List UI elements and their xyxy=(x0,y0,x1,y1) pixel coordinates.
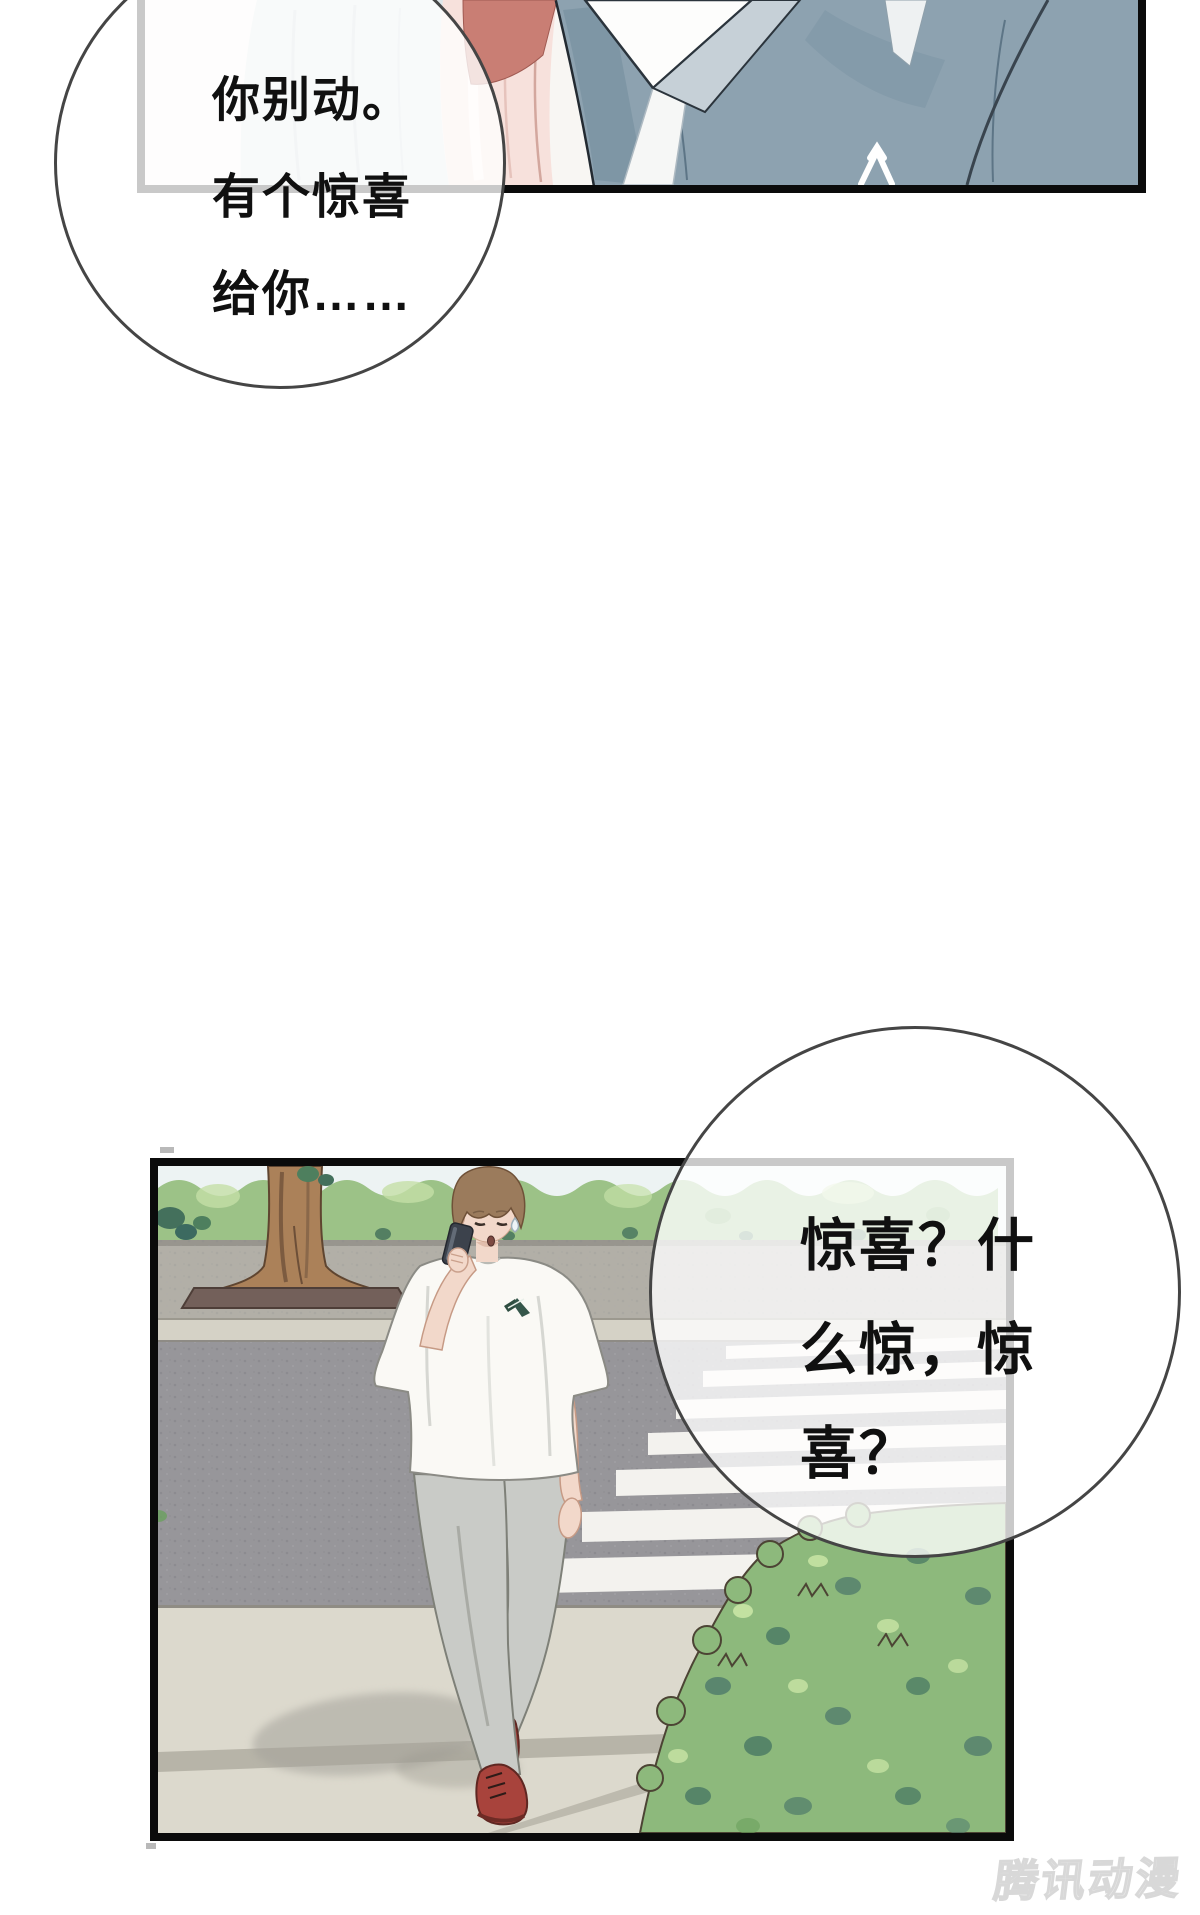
speech-bubble-top-text: 你别动。 有个惊喜 给你…… xyxy=(212,52,412,343)
bubble2-line3: 喜？ xyxy=(800,1402,1036,1506)
bubble1-line3: 给你…… xyxy=(212,246,412,343)
bubble2-line2: 么惊，惊 xyxy=(800,1298,1036,1402)
tree-planter xyxy=(182,1288,410,1308)
bubble1-line1: 你别动。 xyxy=(212,52,412,149)
comic-page: 你别动。 有个惊喜 给你…… 惊喜？什 么惊，惊 喜？ 腾讯动漫 xyxy=(0,0,1200,1915)
tencent-comics-watermark: 腾讯动漫 xyxy=(991,1842,1187,1909)
mouth xyxy=(488,1236,495,1246)
print-speck xyxy=(146,1843,156,1849)
bubble2-line1: 惊喜？什 xyxy=(800,1194,1036,1298)
speech-bubble-bottom-text: 惊喜？什 么惊，惊 喜？ xyxy=(800,1194,1036,1506)
print-speck xyxy=(160,1147,174,1153)
bubble1-line2: 有个惊喜 xyxy=(212,149,412,246)
